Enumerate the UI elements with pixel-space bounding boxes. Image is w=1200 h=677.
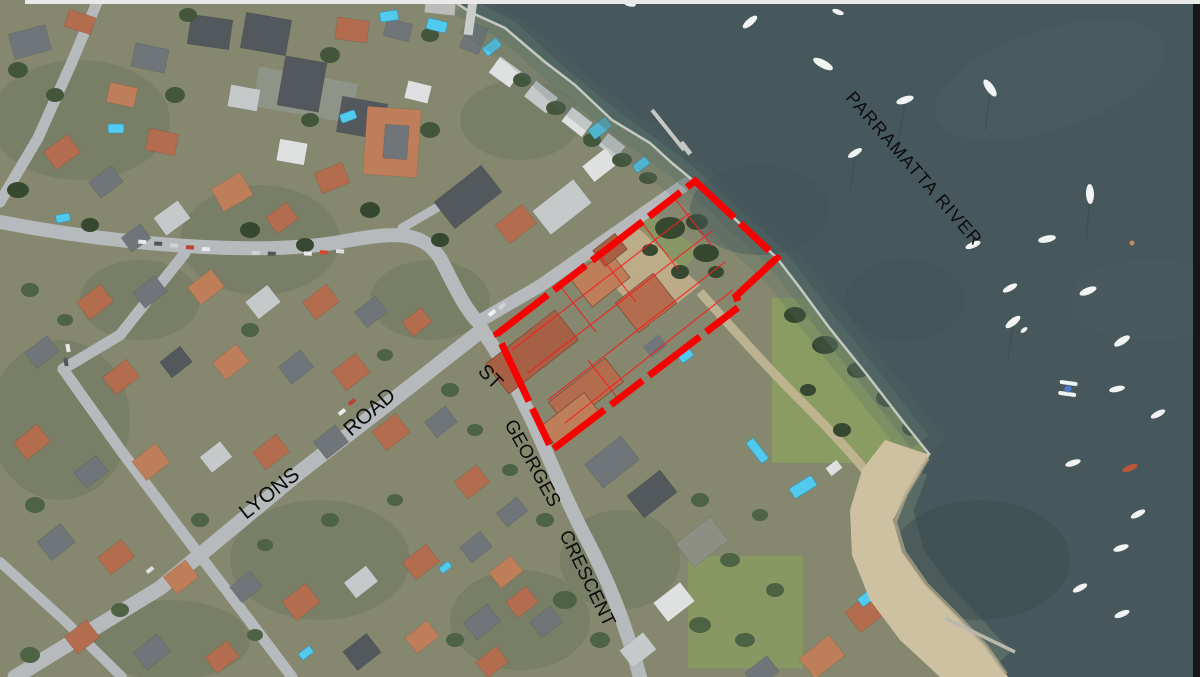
aerial-map-canvas: PARRAMATTA RIVER LYONS ROAD ST GEORGES C… — [0, 0, 1200, 677]
right-border-strip — [1193, 4, 1200, 677]
orange-buoy — [1130, 241, 1135, 246]
top-border-strip — [25, 0, 1200, 4]
aerial-map: PARRAMATTA RIVER LYONS ROAD ST GEORGES C… — [0, 0, 1200, 677]
